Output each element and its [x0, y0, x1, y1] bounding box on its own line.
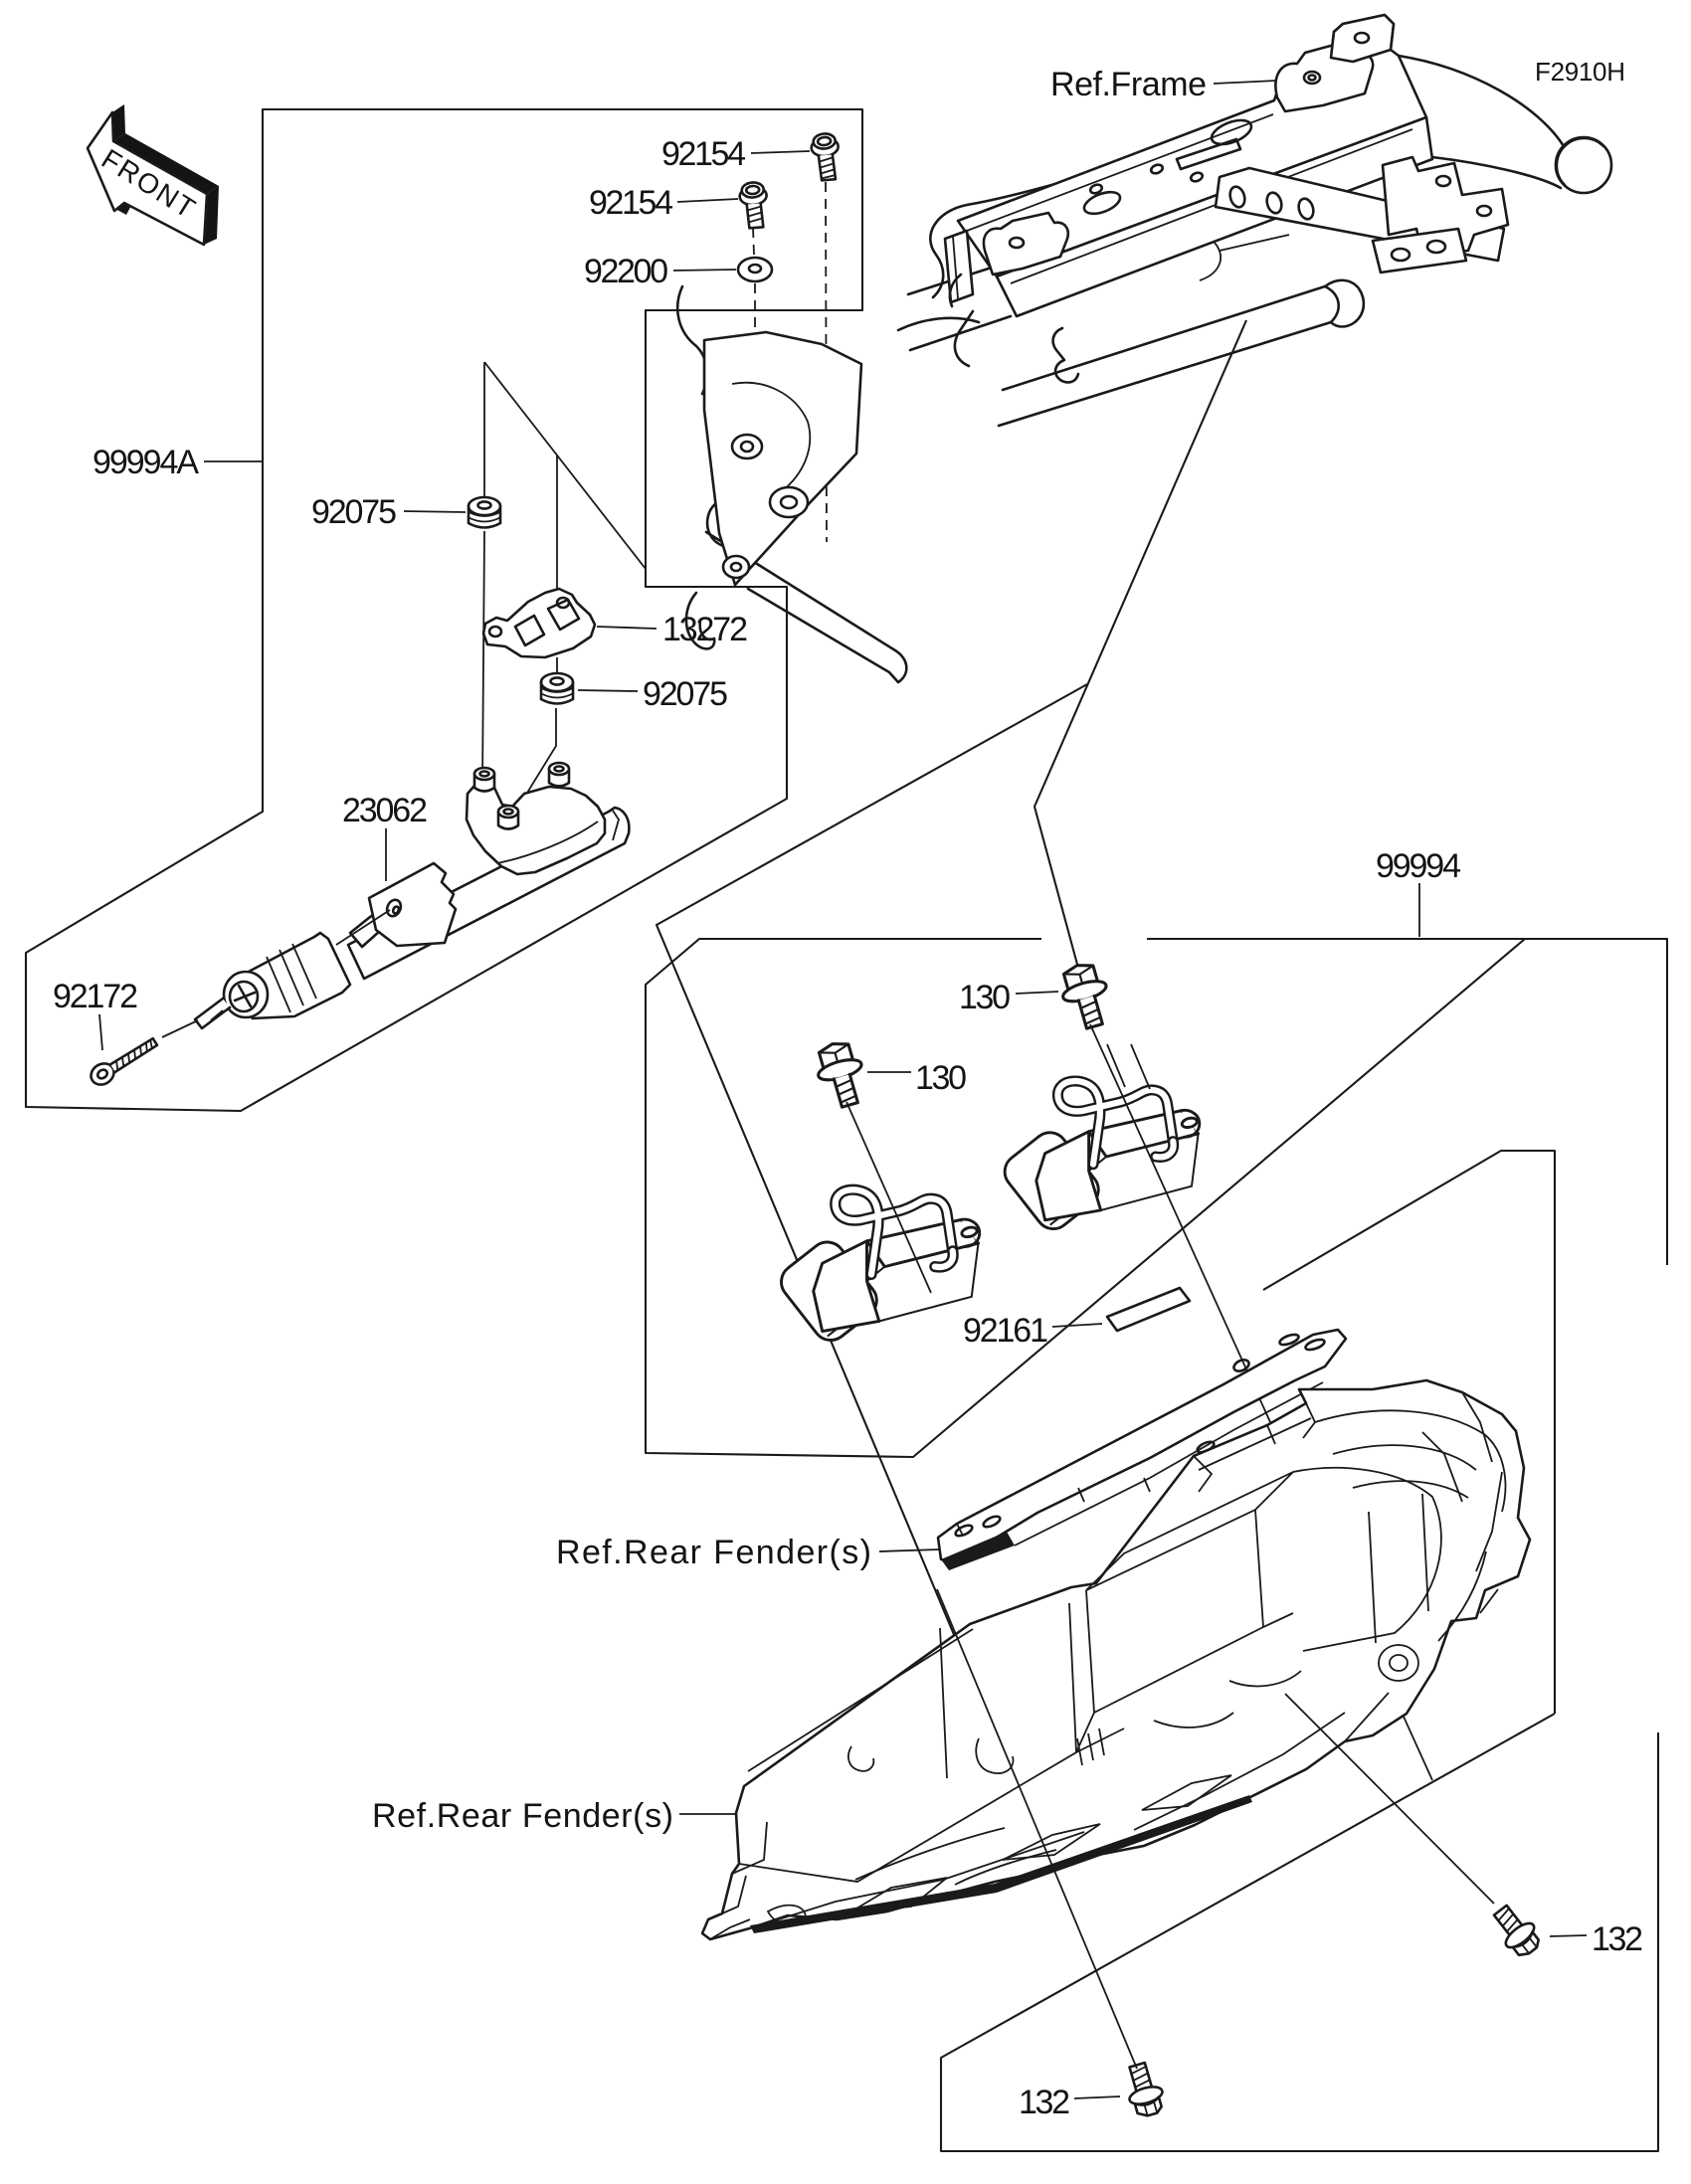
svg-text:92075: 92075 — [643, 675, 728, 713]
svg-text:Ref.Rear Fender(s): Ref.Rear Fender(s) — [372, 1797, 673, 1835]
svg-text:92154: 92154 — [589, 184, 673, 222]
svg-text:92200: 92200 — [584, 253, 668, 290]
svg-text:23062: 23062 — [342, 792, 428, 829]
svg-text:92172: 92172 — [53, 978, 138, 1015]
svg-text:130: 130 — [915, 1059, 967, 1097]
svg-text:13272: 13272 — [662, 611, 748, 648]
svg-text:F2910H: F2910H — [1535, 57, 1625, 87]
svg-text:130: 130 — [959, 979, 1011, 1016]
svg-text:92154: 92154 — [661, 135, 746, 173]
svg-text:132: 132 — [1592, 1920, 1643, 1958]
svg-text:132: 132 — [1019, 2084, 1070, 2121]
svg-text:99994A: 99994A — [93, 444, 199, 481]
svg-text:92075: 92075 — [311, 493, 397, 531]
svg-text:92161: 92161 — [963, 1312, 1048, 1350]
svg-text:Ref.Rear Fender(s): Ref.Rear Fender(s) — [556, 1534, 871, 1571]
svg-text:Ref.Frame: Ref.Frame — [1050, 66, 1207, 103]
svg-text:99994: 99994 — [1376, 847, 1461, 885]
